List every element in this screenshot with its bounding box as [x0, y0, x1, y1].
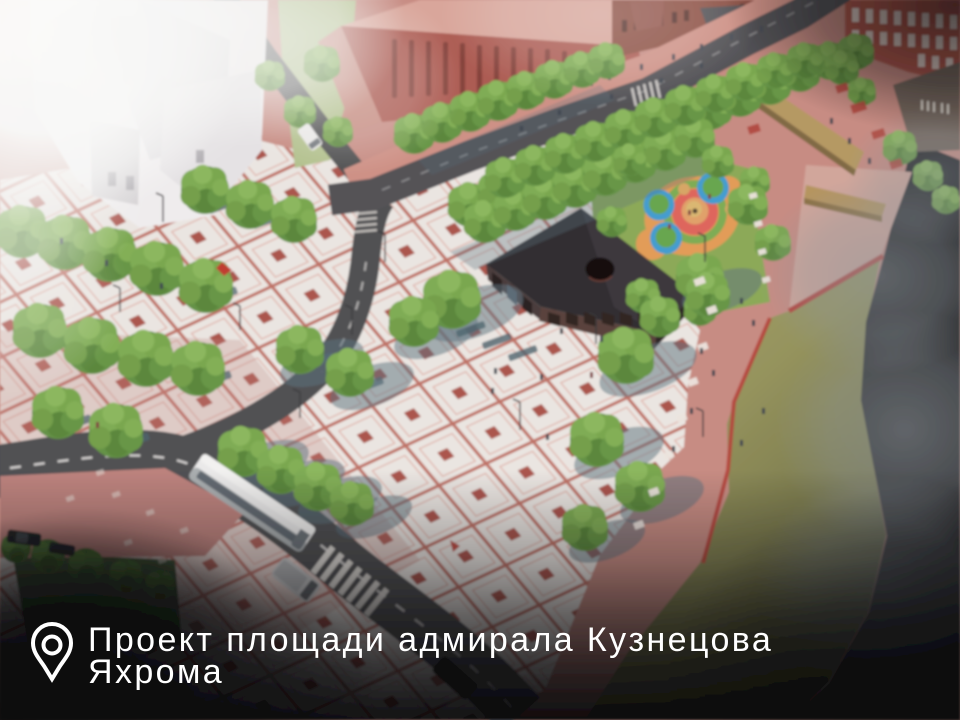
svg-text:Яхрома: Яхрома [88, 653, 224, 691]
